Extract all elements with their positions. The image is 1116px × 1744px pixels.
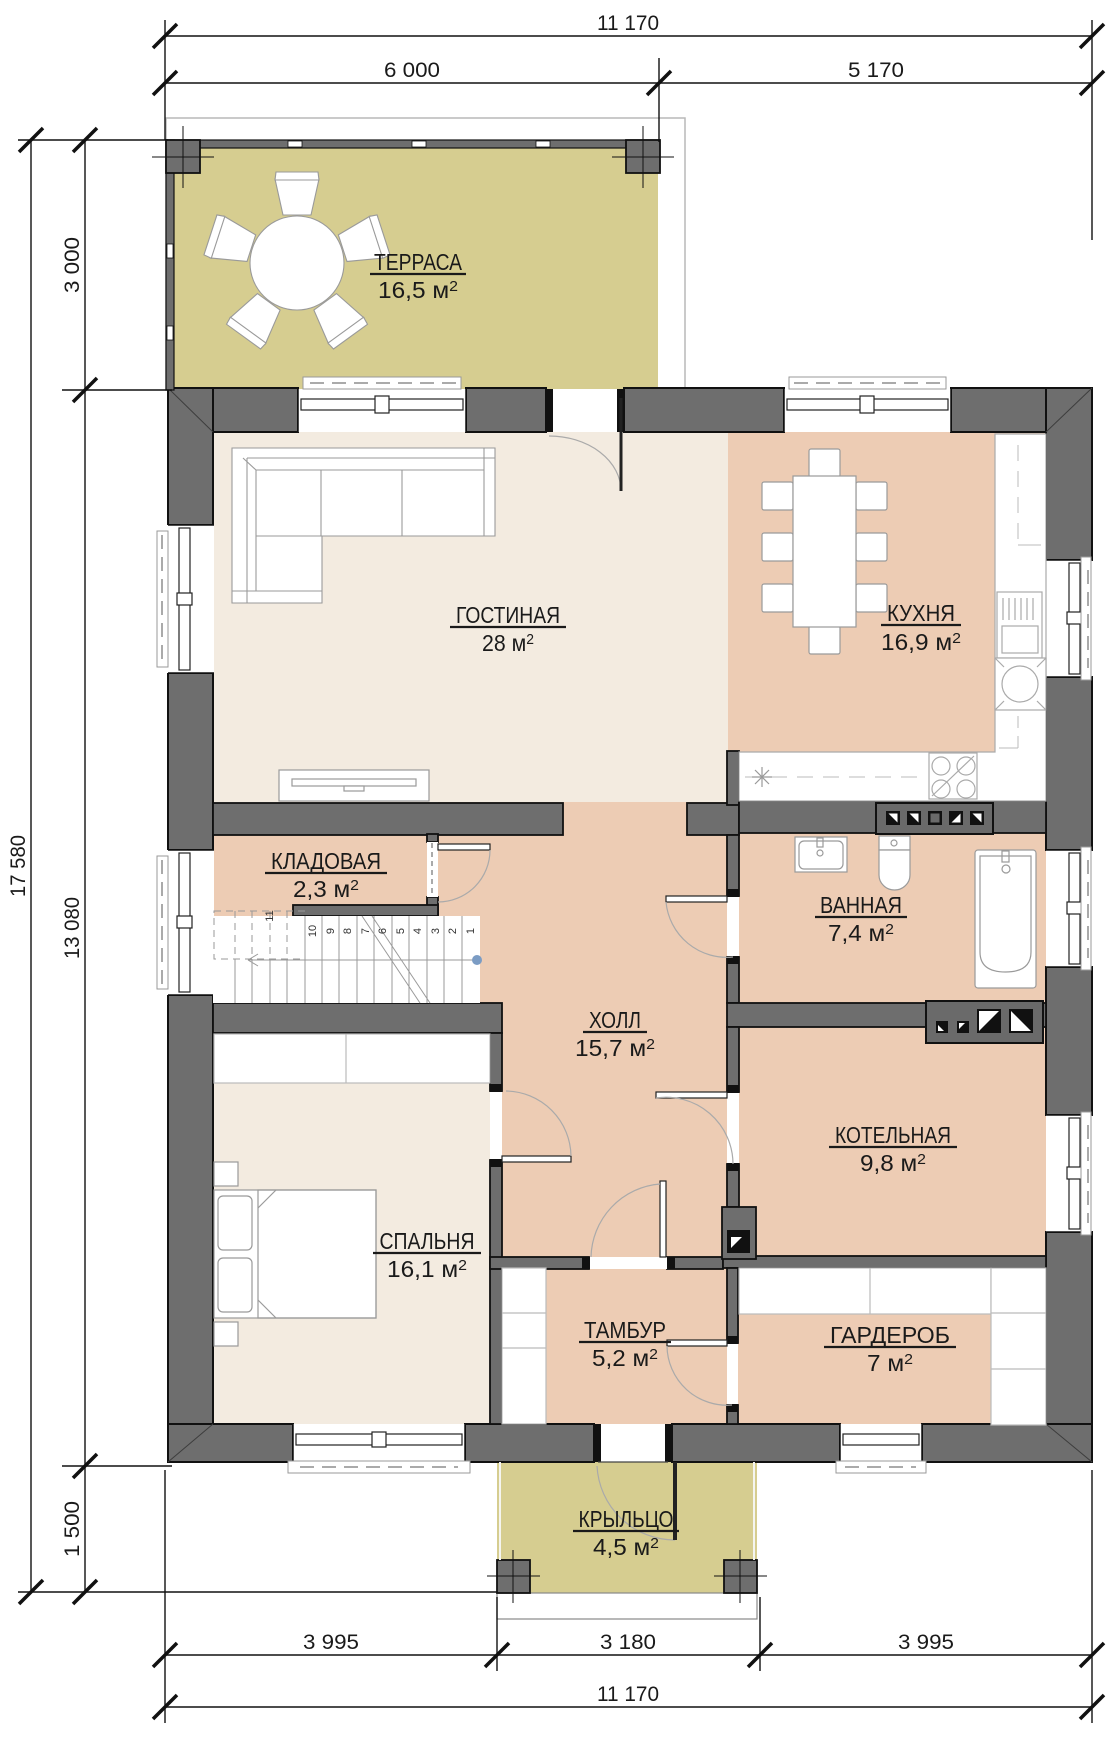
svg-text:ТЕРРАСА: ТЕРРАСА xyxy=(374,249,463,275)
svg-text:6: 6 xyxy=(377,928,389,934)
svg-text:9,8 м2: 9,8 м2 xyxy=(860,1150,926,1176)
svg-text:5,2 м2: 5,2 м2 xyxy=(592,1345,658,1371)
svg-text:4: 4 xyxy=(412,928,424,934)
svg-text:ХОЛЛ: ХОЛЛ xyxy=(589,1007,641,1033)
svg-text:КЛАДОВАЯ: КЛАДОВАЯ xyxy=(271,848,381,874)
svg-text:10: 10 xyxy=(307,925,319,937)
svg-text:11 170: 11 170 xyxy=(597,12,659,35)
svg-text:3 995: 3 995 xyxy=(303,1631,359,1654)
svg-text:7,4 м2: 7,4 м2 xyxy=(828,920,894,946)
svg-text:1: 1 xyxy=(465,928,477,934)
svg-text:15,7 м2: 15,7 м2 xyxy=(575,1035,655,1061)
svg-text:КРЫЛЬЦО: КРЫЛЬЦО xyxy=(579,1506,674,1532)
svg-text:7: 7 xyxy=(360,928,372,934)
svg-text:11: 11 xyxy=(264,910,276,921)
svg-text:КОТЕЛЬНАЯ: КОТЕЛЬНАЯ xyxy=(835,1122,951,1148)
svg-text:3 180: 3 180 xyxy=(600,1631,656,1654)
svg-text:1 500: 1 500 xyxy=(61,1501,84,1557)
svg-text:9: 9 xyxy=(325,928,337,934)
svg-text:3 995: 3 995 xyxy=(898,1631,954,1654)
svg-text:13 080: 13 080 xyxy=(61,897,84,959)
svg-text:КУХНЯ: КУХНЯ xyxy=(887,600,955,626)
svg-text:5: 5 xyxy=(395,928,407,934)
svg-text:28 м2: 28 м2 xyxy=(482,630,534,656)
svg-text:2: 2 xyxy=(447,928,459,934)
svg-text:5 170: 5 170 xyxy=(848,59,904,82)
svg-text:3: 3 xyxy=(430,928,442,934)
svg-text:16,5 м2: 16,5 м2 xyxy=(378,277,458,303)
svg-text:4,5 м2: 4,5 м2 xyxy=(593,1534,659,1560)
svg-text:16,9 м2: 16,9 м2 xyxy=(881,629,961,655)
svg-text:16,1 м2: 16,1 м2 xyxy=(387,1256,467,1282)
svg-text:11 170: 11 170 xyxy=(597,1683,659,1706)
svg-text:ТАМБУР: ТАМБУР xyxy=(584,1317,666,1343)
svg-text:2,3 м2: 2,3 м2 xyxy=(293,876,359,902)
svg-text:СПАЛЬНЯ: СПАЛЬНЯ xyxy=(380,1228,475,1254)
svg-text:8: 8 xyxy=(342,928,354,934)
svg-text:3 000: 3 000 xyxy=(61,237,84,293)
svg-text:ГОСТИНАЯ: ГОСТИНАЯ xyxy=(456,602,560,628)
svg-text:ГАРДЕРОБ: ГАРДЕРОБ xyxy=(830,1322,950,1348)
svg-text:6 000: 6 000 xyxy=(384,59,440,82)
svg-text:17 580: 17 580 xyxy=(7,835,30,897)
svg-text:ВАННАЯ: ВАННАЯ xyxy=(820,892,902,918)
